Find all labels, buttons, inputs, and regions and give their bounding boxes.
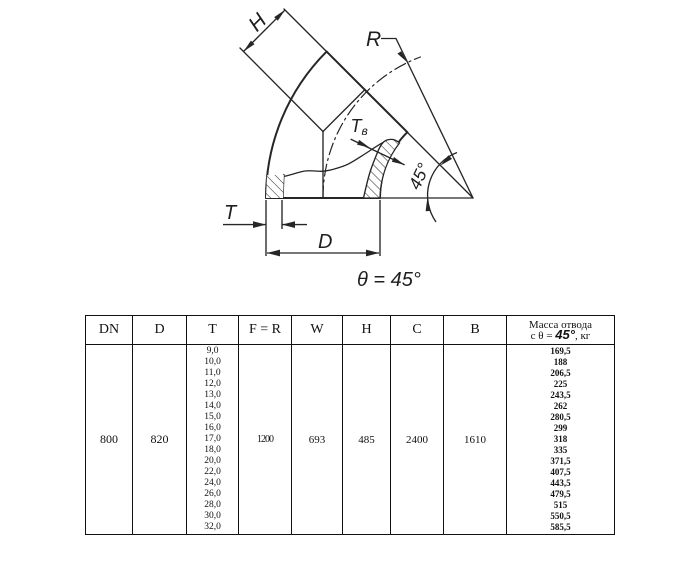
- svg-text:H: H: [244, 9, 272, 37]
- svg-text:R: R: [366, 28, 381, 51]
- svg-text:D: D: [318, 231, 332, 253]
- svg-text:Tв: Tв: [351, 116, 368, 138]
- svg-text:T: T: [224, 202, 238, 224]
- svg-text:θ = 45°: θ = 45°: [357, 269, 421, 291]
- svg-text:45°: 45°: [404, 160, 433, 192]
